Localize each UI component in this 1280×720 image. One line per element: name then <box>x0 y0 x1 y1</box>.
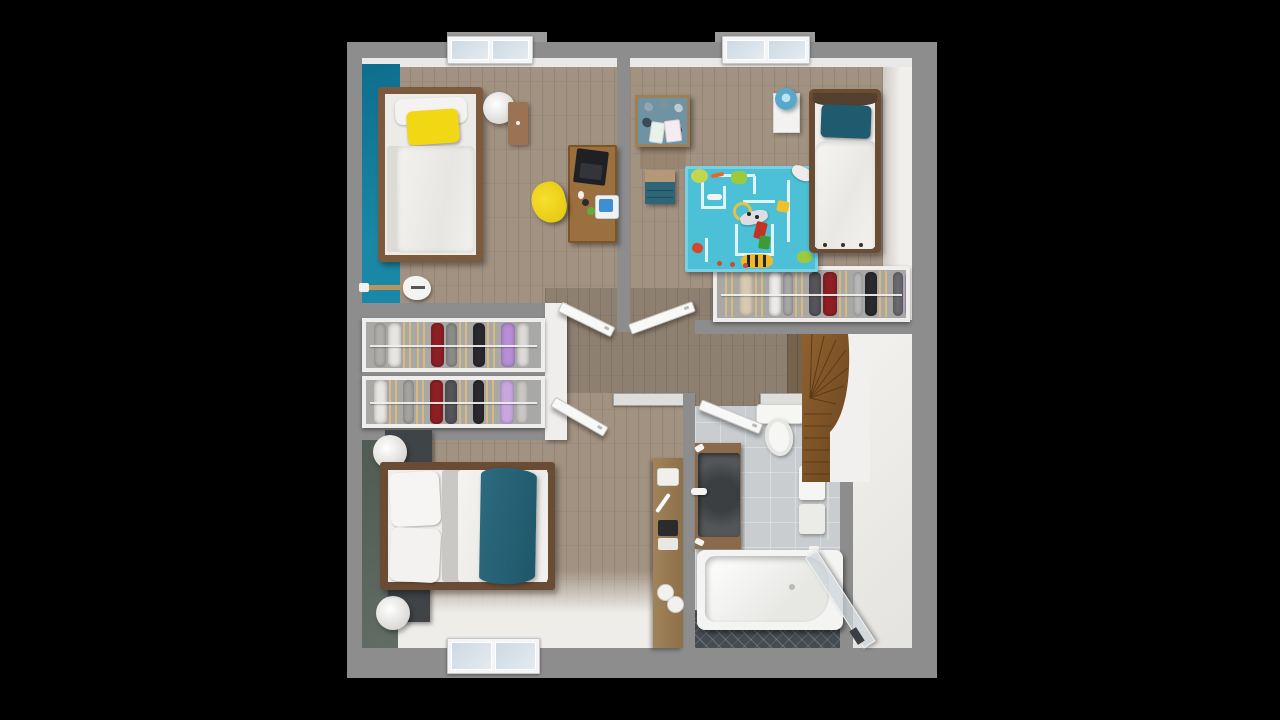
soap-item <box>694 537 705 546</box>
kids-closet <box>713 266 910 322</box>
rug-path <box>723 186 726 209</box>
toy-elephant <box>731 171 747 184</box>
electric-guitar <box>359 276 431 300</box>
cup <box>582 199 589 206</box>
bedroom1-single-bed <box>378 87 483 262</box>
desk <box>568 145 617 243</box>
master-bedroom-window <box>447 638 540 674</box>
rug-path <box>743 200 775 203</box>
toy-tiger-stripe <box>763 255 766 267</box>
north-wall-face <box>362 58 912 67</box>
toy-spot <box>747 212 751 216</box>
printer-lid <box>599 199 613 212</box>
bathroom-west-wall <box>683 393 695 660</box>
kids-table-lamp <box>775 88 797 110</box>
window-pane <box>495 642 536 670</box>
pillow <box>389 471 442 528</box>
rug-path <box>771 224 774 256</box>
toothbrush <box>655 493 671 513</box>
wardrobe-rail-row-2 <box>362 376 545 428</box>
bedroom1-nightstand <box>508 102 528 145</box>
tub-drain <box>789 584 795 590</box>
bedroom1-window <box>447 36 533 64</box>
window-pane <box>726 40 765 60</box>
rug-path <box>701 206 725 209</box>
footboard-slat <box>859 243 863 247</box>
hall-console-table <box>653 458 683 648</box>
teal-bed-runner <box>479 468 537 585</box>
south-outer-wall <box>347 648 937 678</box>
drawer-line <box>647 190 673 191</box>
guitar-headstock <box>359 283 369 292</box>
wardrobe-end-panel <box>545 303 567 440</box>
kids-room-window <box>722 36 810 64</box>
duvet <box>815 141 875 249</box>
soap-item <box>694 443 705 453</box>
bathroom-vanity <box>695 443 741 549</box>
clothes-rail <box>370 402 537 404</box>
card <box>664 119 683 143</box>
toy-butterfly <box>691 241 705 254</box>
master-double-bed <box>380 462 555 590</box>
toy-tiger-stripe <box>755 255 758 267</box>
dresser-top <box>645 170 675 182</box>
play-rug <box>685 166 818 272</box>
floor-plan <box>347 30 937 678</box>
kids-room-south-wall <box>695 320 912 334</box>
footboard-slat <box>841 243 845 247</box>
heart-decor <box>672 102 684 114</box>
vanity-basin <box>698 453 740 537</box>
window-pane <box>451 40 489 60</box>
heart-decor <box>642 101 654 113</box>
plant <box>587 207 595 215</box>
rug-path <box>735 224 738 256</box>
duvet <box>397 146 475 253</box>
towel-stack-light <box>658 538 678 550</box>
guitar-pickups <box>411 286 425 289</box>
bedroom1-south-wall <box>347 303 560 318</box>
window-pane <box>768 40 807 60</box>
toy-flower <box>717 261 722 266</box>
mouse <box>578 191 584 199</box>
pillow <box>389 527 442 584</box>
clothes-rail <box>370 345 537 347</box>
master-lamp-south <box>376 596 410 630</box>
toy-cheese <box>776 200 790 213</box>
roll <box>667 596 684 613</box>
toy-flower <box>743 263 748 268</box>
toy-green-blob <box>797 251 812 263</box>
window-pane <box>451 642 492 670</box>
kids-single-bed <box>809 89 881 253</box>
window-pane <box>492 40 530 60</box>
laptop-keys <box>579 163 603 181</box>
rug-path <box>705 238 708 262</box>
toy-tree <box>691 169 708 183</box>
towel <box>799 504 825 534</box>
yellow-pillow <box>406 108 460 146</box>
card <box>649 121 666 144</box>
clothes-rail <box>721 294 902 296</box>
heart-decor <box>659 99 670 110</box>
teal-pillow <box>820 104 871 139</box>
east-outer-wall <box>912 42 937 676</box>
wardrobe-rail-row-1 <box>362 318 545 372</box>
toy-flower <box>730 262 735 267</box>
winder-staircase <box>802 334 870 482</box>
faucet <box>691 488 707 495</box>
bedrooms-divider-wall <box>617 42 630 332</box>
toy-carrot <box>711 172 725 179</box>
drawer-knob <box>516 121 520 125</box>
clothes-item <box>905 272 910 316</box>
kids-dresser <box>645 170 675 204</box>
west-outer-wall <box>347 42 362 676</box>
toy-spot <box>755 215 759 219</box>
craft-table <box>635 95 690 147</box>
drawer-line <box>647 197 673 198</box>
wardrobe-south-wall <box>347 428 545 440</box>
footboard-slat <box>823 243 827 247</box>
tray <box>657 468 679 486</box>
towel-stack-dark <box>658 520 678 536</box>
toy-bone <box>707 194 722 200</box>
north-outer-wall <box>347 42 937 58</box>
rug-path <box>753 176 756 194</box>
toy-block-green <box>758 235 771 249</box>
craft-table-shadow <box>640 145 686 169</box>
